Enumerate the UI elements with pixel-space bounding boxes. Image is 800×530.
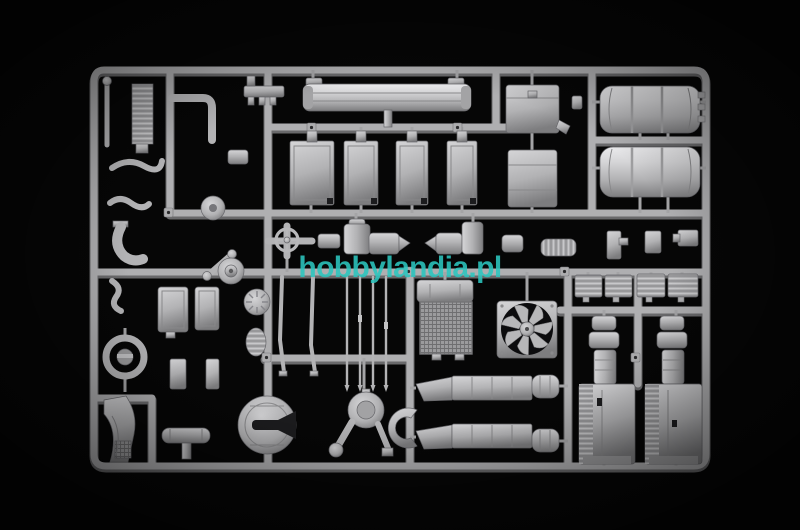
sprue-photo: hobbylandia.pl xyxy=(0,0,800,530)
part-cooling-fan xyxy=(497,301,557,358)
part-radiator xyxy=(417,280,473,360)
watermark-text: hobbylandia.pl xyxy=(298,251,501,284)
photo-canvas: hobbylandia.pl xyxy=(0,0,800,530)
fifth-wheel-coupling xyxy=(238,396,296,454)
muffler xyxy=(162,428,210,443)
